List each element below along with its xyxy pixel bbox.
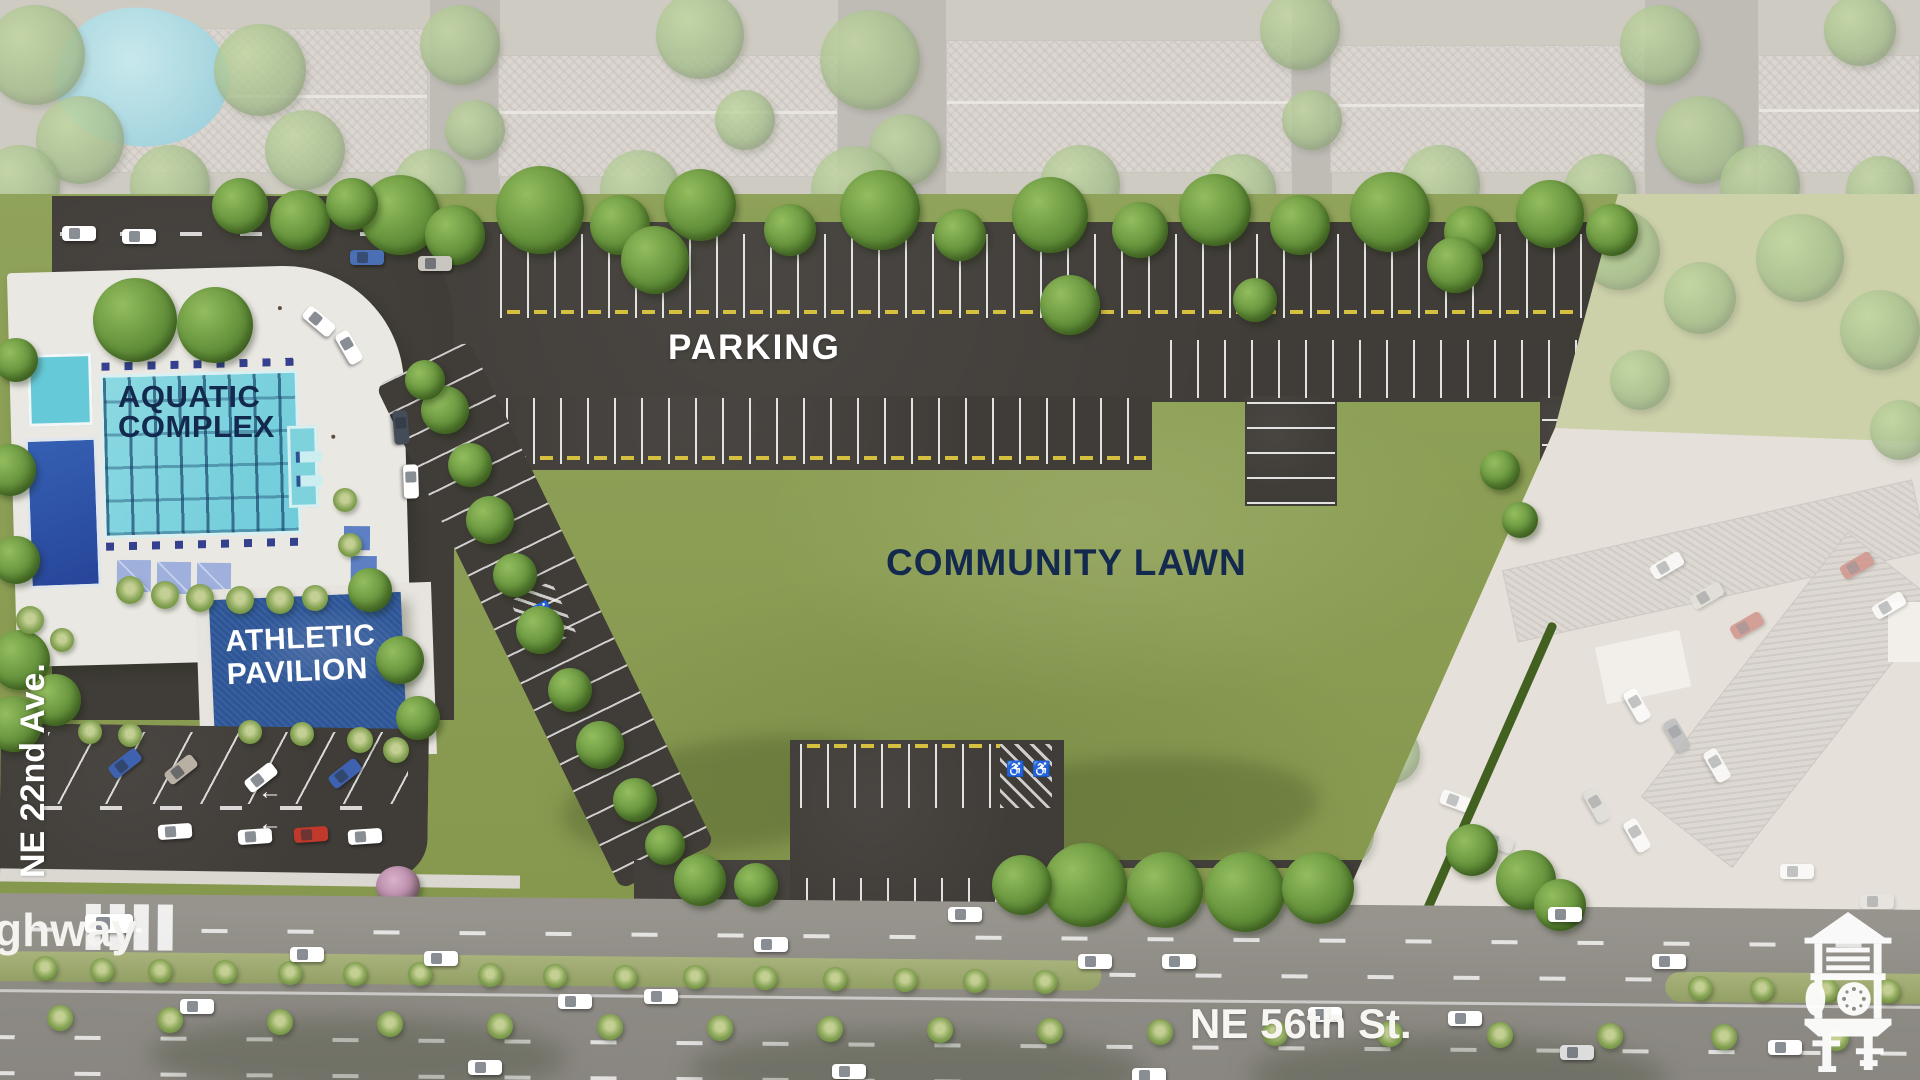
parking-stalls — [1170, 340, 1612, 398]
drive-centerline — [40, 806, 400, 810]
wheel-stops — [506, 456, 1146, 460]
ne-22nd-ave-label: NE 22nd Ave. — [14, 626, 66, 878]
parking-stalls — [800, 744, 1000, 808]
left-arrow: ← — [258, 780, 282, 804]
athletic-pavilion-label: ATHLETIC PAVILION — [225, 619, 378, 691]
community-lawn-label: COMMUNITY LAWN — [886, 542, 1247, 584]
drive-centerline — [60, 232, 390, 236]
edge-line — [0, 989, 1920, 1010]
person — [118, 306, 122, 310]
ne-56th-street — [0, 893, 1920, 1080]
person — [278, 306, 282, 310]
parking-stalls — [1247, 400, 1335, 504]
tree-shadow — [148, 1014, 569, 1080]
parking-label: PARKING — [668, 328, 841, 368]
umbrella — [157, 562, 191, 594]
handicap-symbol: ♿ — [1032, 762, 1051, 777]
diving-board — [296, 451, 322, 463]
site-plan-rendering: ♿ ← ← ♿ ♿ — [0, 0, 1920, 1080]
umbrella — [351, 556, 377, 580]
umbrella — [344, 526, 370, 550]
lap-pool-extension — [287, 425, 319, 508]
lane-markers — [106, 538, 302, 551]
person — [244, 311, 248, 315]
angled-stalls — [48, 732, 408, 804]
wheel-stops — [800, 744, 1000, 748]
parking-stalls — [506, 398, 1146, 464]
person — [158, 311, 162, 315]
aquatic-complex-label: AQUATIC COMPLEX — [118, 382, 275, 443]
clock-tower-logo — [1788, 910, 1908, 1072]
highway-partial-label: ghway — [0, 903, 137, 957]
deep-pool — [25, 437, 102, 589]
wheel-stops — [500, 310, 1612, 314]
umbrella — [117, 560, 151, 592]
landscaped-median — [0, 951, 1101, 991]
left-arrow: ← — [258, 812, 282, 836]
context-neighborhood-band — [0, 0, 1920, 202]
handicap-symbol: ♿ — [1006, 762, 1025, 777]
parking-stalls — [500, 234, 1612, 318]
small-pool — [27, 353, 93, 427]
tree-shadow — [688, 1029, 1149, 1080]
person — [331, 435, 335, 439]
lane-line — [30, 927, 1920, 948]
pavilion-label-line2: PAVILION — [226, 652, 377, 692]
aquatic-label-line2: COMPLEX — [118, 412, 275, 442]
lane-markers — [101, 358, 297, 371]
diving-board — [296, 475, 322, 487]
context-fade-overlay — [0, 0, 1920, 202]
lane-line — [1109, 973, 1657, 982]
aquatic-label-line1: AQUATIC — [118, 382, 275, 412]
ne-56th-st-label: NE 56th St. — [1190, 1000, 1412, 1048]
person — [203, 306, 207, 310]
